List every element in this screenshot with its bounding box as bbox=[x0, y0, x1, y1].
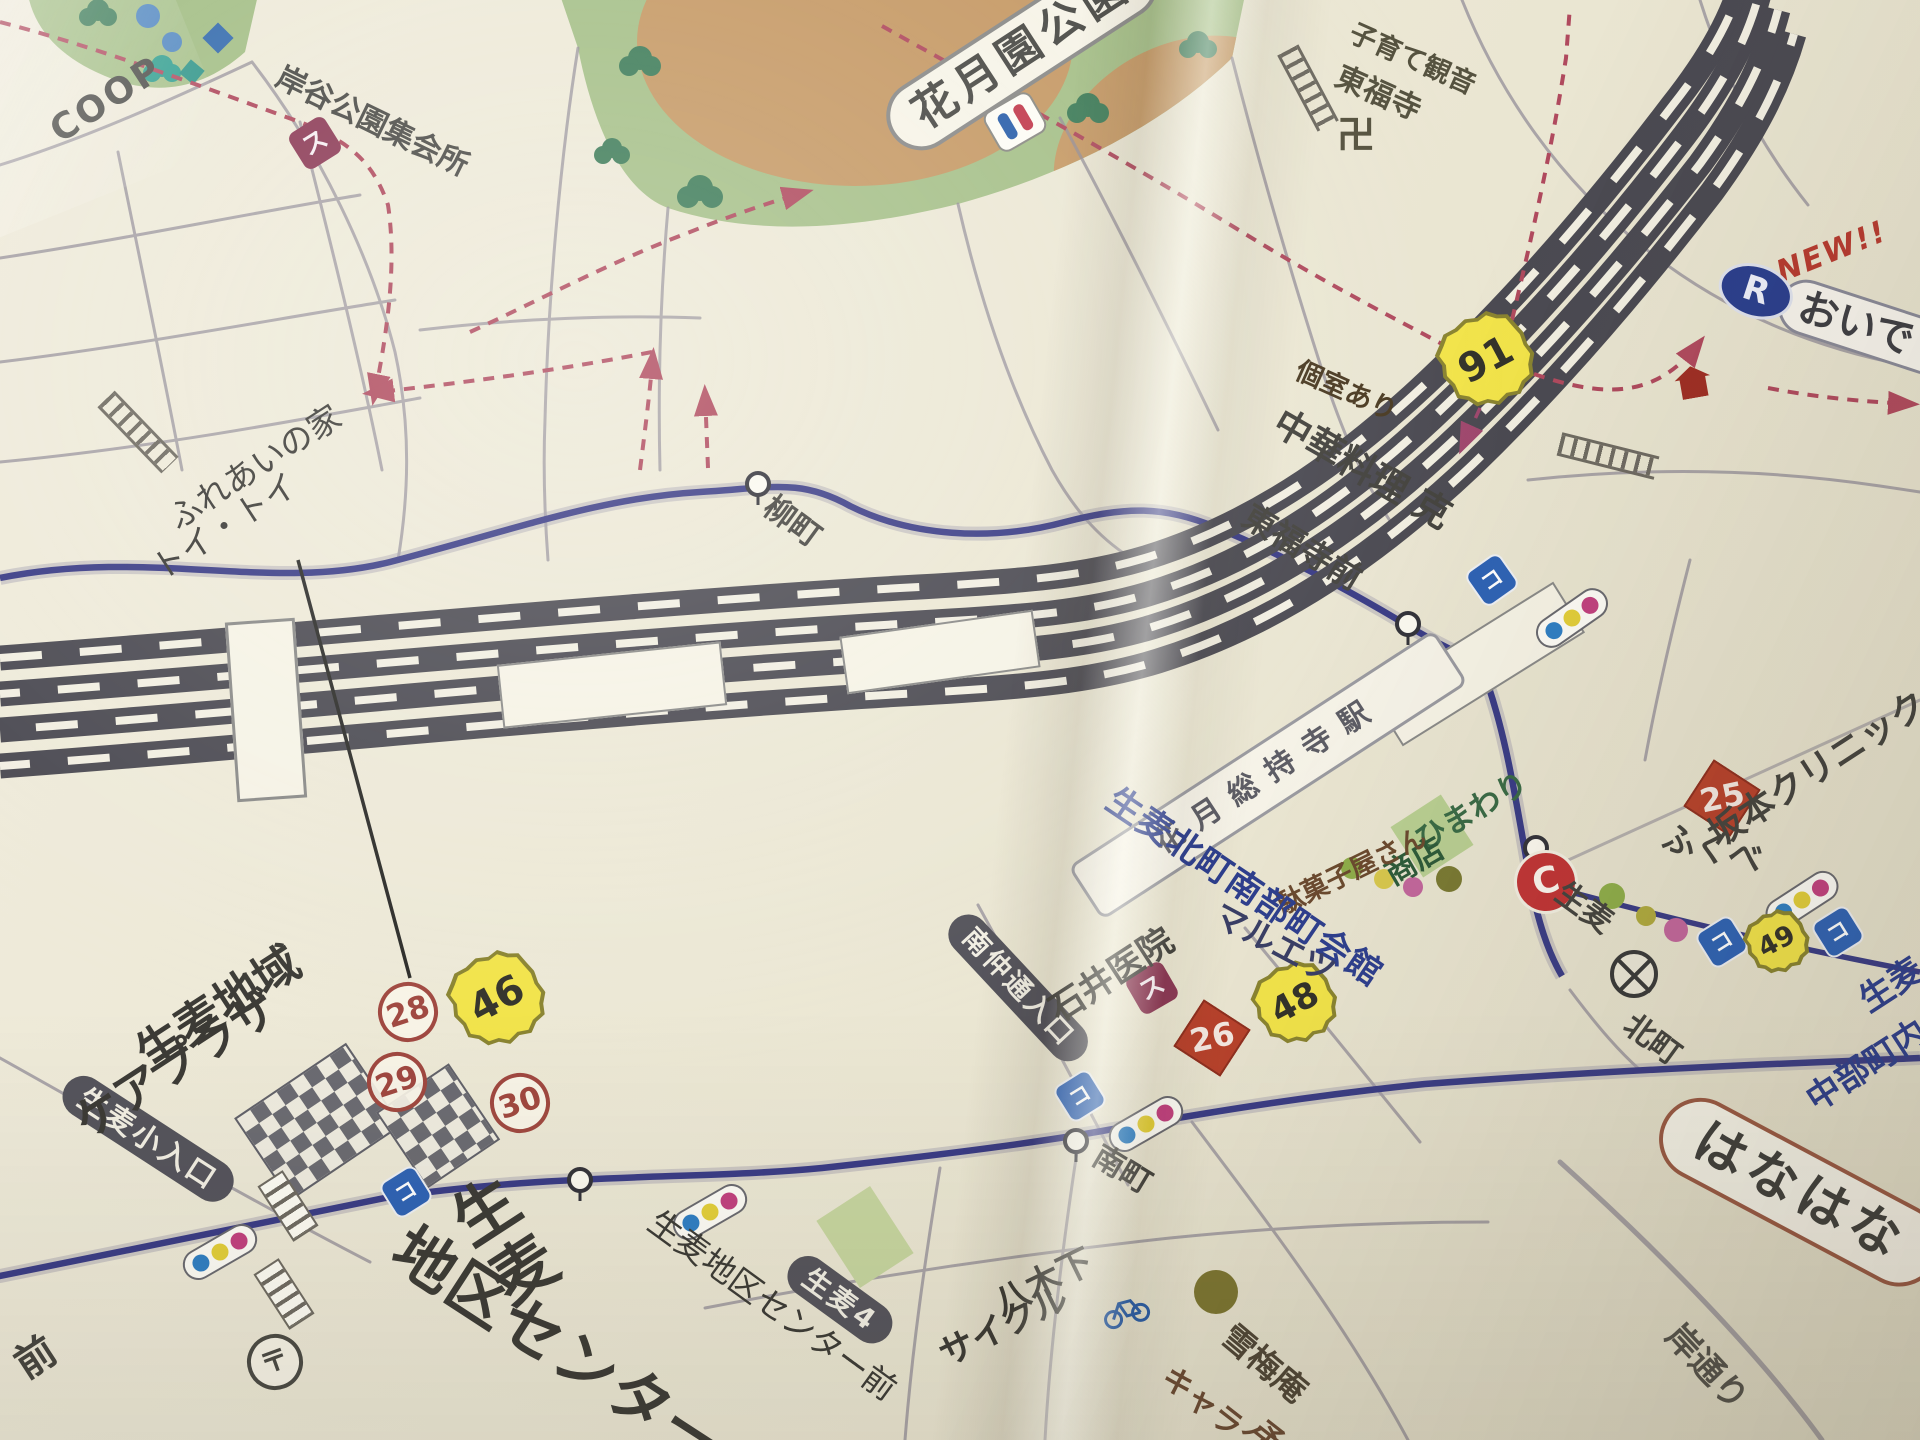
bus-stop-tofukujimae bbox=[1395, 611, 1421, 637]
bus-stop-yanagicho bbox=[745, 471, 771, 497]
bus-stop-minamicho bbox=[1063, 1128, 1089, 1154]
park-areas bbox=[28, 0, 1356, 305]
circle-x-icon bbox=[1610, 950, 1658, 998]
bus-stop-center-mae bbox=[567, 1167, 593, 1193]
paper-map-photo: 花月総持寺駅 〒 コ コ コ コ コ ス ス 91 46 48 49 25 26… bbox=[0, 0, 1920, 1440]
point-badge-26: 26 bbox=[1179, 1005, 1245, 1071]
post-mark: 〒 bbox=[257, 1343, 293, 1380]
building-outline bbox=[225, 618, 307, 802]
temple-icon: 卍 bbox=[1337, 116, 1375, 156]
